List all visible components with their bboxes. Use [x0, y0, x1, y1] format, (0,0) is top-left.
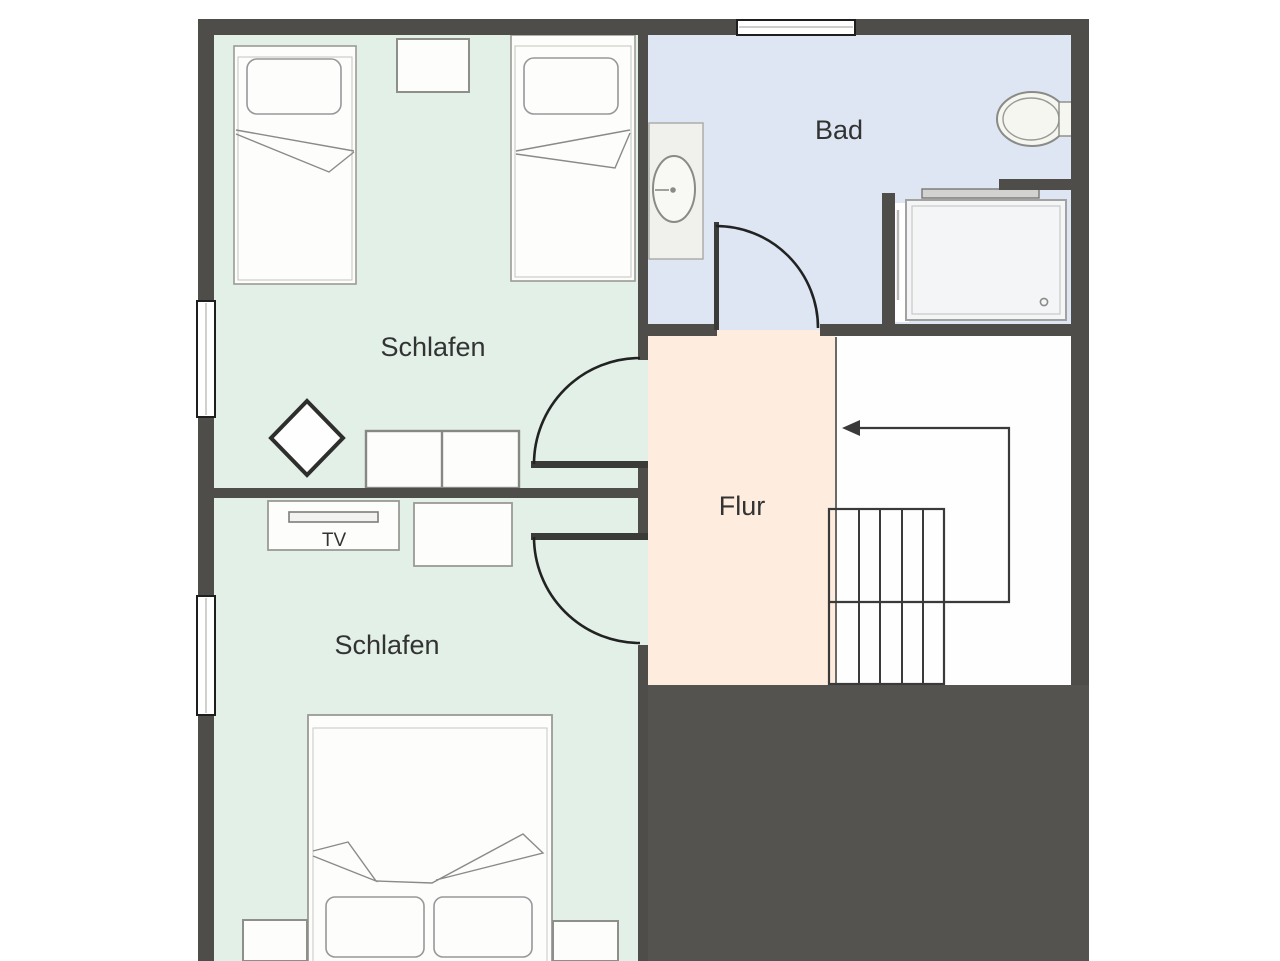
- svg-text:Schlafen: Schlafen: [380, 332, 485, 362]
- svg-text:Bad: Bad: [815, 115, 863, 145]
- svg-text:Flur: Flur: [719, 491, 766, 521]
- svg-text:TV: TV: [322, 530, 347, 551]
- svg-text:Schlafen: Schlafen: [334, 630, 439, 660]
